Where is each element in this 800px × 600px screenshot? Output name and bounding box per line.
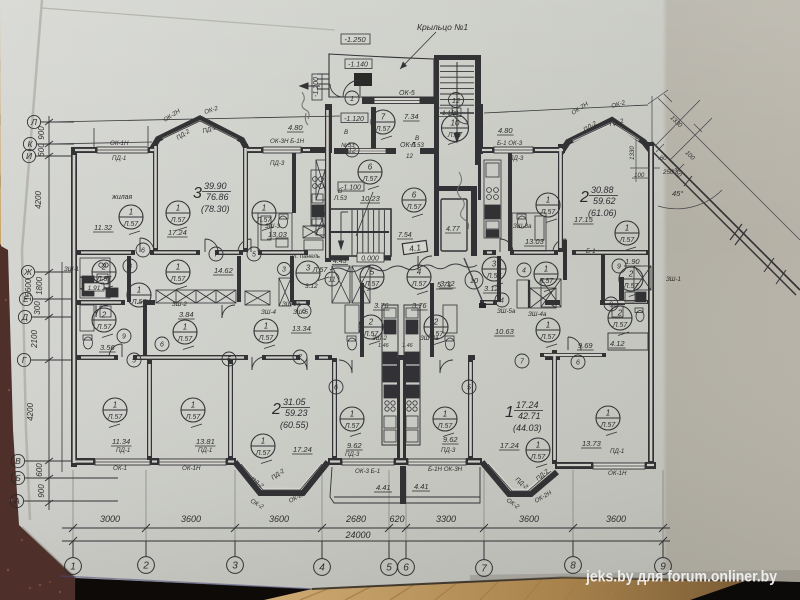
svg-text:5: 5 (252, 252, 256, 259)
svg-text:4.41: 4.41 (376, 483, 391, 492)
svg-text:ПД-1: ПД-1 (116, 447, 130, 454)
svg-text:Л.57: Л.57 (486, 273, 503, 280)
svg-text:12: 12 (452, 96, 461, 105)
svg-text:(60.55): (60.55) (280, 420, 309, 430)
svg-text:Л.57: Л.57 (312, 267, 329, 274)
svg-text:4: 4 (319, 563, 325, 574)
svg-text:600: 600 (35, 463, 44, 477)
svg-text:7: 7 (481, 564, 487, 575)
svg-text:3.76: 3.76 (412, 301, 427, 310)
svg-text:4.1: 4.1 (408, 242, 421, 254)
svg-text:-1.120: -1.120 (344, 116, 364, 123)
svg-text:11.34: 11.34 (112, 437, 130, 446)
svg-text:Л.57: Л.57 (177, 336, 194, 343)
svg-text:4200: 4200 (34, 191, 43, 209)
svg-text:3600: 3600 (181, 514, 201, 524)
svg-text:2: 2 (433, 318, 439, 327)
svg-text:Л.57: Л.57 (623, 283, 640, 290)
svg-text:1: 1 (546, 321, 550, 330)
svg-text:6: 6 (403, 563, 409, 574)
svg-text:6: 6 (412, 191, 417, 200)
svg-text:ПД-1: ПД-1 (198, 447, 212, 454)
svg-text:ЗШ-4: ЗШ-4 (261, 309, 277, 316)
svg-text:Крыльцо №1: Крыльцо №1 (417, 22, 468, 32)
svg-text:ПД-3: ПД-3 (441, 447, 456, 454)
svg-text:Л.57: Л.57 (96, 324, 113, 331)
svg-text:13.81: 13.81 (196, 437, 215, 446)
svg-text:1: 1 (546, 196, 550, 205)
svg-text:8: 8 (570, 561, 576, 572)
svg-text:4: 4 (500, 298, 504, 305)
svg-text:Б-1: Б-1 (586, 248, 596, 255)
svg-text:14.62: 14.62 (214, 266, 234, 275)
svg-text:В: В (338, 188, 342, 195)
svg-text:9.62: 9.62 (443, 435, 458, 444)
svg-text:3.76: 3.76 (374, 301, 389, 310)
svg-text:13.73: 13.73 (582, 439, 602, 448)
svg-text:ПД-3: ПД-3 (345, 451, 360, 458)
svg-text:4.77: 4.77 (446, 226, 461, 233)
svg-text:4.80: 4.80 (498, 126, 513, 135)
svg-text:Л.57: Л.57 (600, 422, 617, 429)
svg-text:9: 9 (122, 334, 126, 341)
svg-text:9: 9 (609, 302, 613, 309)
svg-text:2: 2 (579, 189, 589, 206)
svg-text:5: 5 (386, 563, 392, 574)
svg-text:42.71: 42.71 (518, 411, 541, 421)
svg-text:5: 5 (132, 358, 136, 365)
svg-text:Л.57: Л.57 (406, 204, 423, 211)
svg-text:ЗШ-5: ЗШ-5 (293, 309, 309, 316)
svg-text:.60: .60 (658, 155, 667, 162)
svg-text:9.62: 9.62 (347, 441, 362, 450)
svg-text:Д: Д (21, 312, 28, 322)
svg-text:1: 1 (350, 94, 354, 103)
svg-text:1: 1 (176, 204, 180, 213)
svg-text:Л.57: Л.57 (375, 126, 392, 133)
svg-text:(78.30): (78.30) (201, 204, 230, 214)
svg-text:6: 6 (576, 360, 580, 367)
svg-text:В: В (344, 129, 348, 136)
svg-text:№53: №53 (341, 142, 355, 149)
svg-text:300: 300 (33, 301, 42, 315)
svg-text:(44.03): (44.03) (513, 423, 542, 433)
svg-text:Л.57: Л.57 (107, 414, 124, 421)
svg-text:9: 9 (617, 264, 621, 271)
svg-text:4.12: 4.12 (610, 339, 625, 348)
svg-text:17.24: 17.24 (516, 400, 539, 410)
svg-text:1: 1 (261, 437, 265, 446)
svg-text:3: 3 (232, 561, 238, 572)
svg-text:ЗШ-5а: ЗШ-5а (497, 308, 516, 315)
svg-text:Л.57: Л.57 (258, 335, 275, 342)
svg-text:ПД-3: ПД-3 (509, 155, 524, 162)
svg-text:12: 12 (406, 153, 413, 160)
svg-text:Л.57: Л.57 (447, 132, 464, 139)
svg-text:Л.57: Л.57 (530, 454, 547, 461)
svg-text:3600: 3600 (519, 514, 539, 524)
svg-text:Л.57: Л.57 (437, 423, 454, 430)
svg-text:А: А (13, 496, 20, 506)
svg-text:2: 2 (628, 270, 634, 279)
svg-text:2: 2 (368, 318, 374, 327)
svg-text:Л.57: Л.57 (170, 276, 187, 283)
svg-text:1.91: 1.91 (88, 285, 101, 292)
svg-text:45°: 45° (672, 189, 683, 198)
svg-text:13.03: 13.03 (525, 237, 545, 246)
svg-text:7.54: 7.54 (398, 232, 412, 239)
svg-text:1: 1 (625, 224, 629, 233)
svg-text:6: 6 (368, 163, 373, 172)
svg-text:ОК-1Н: ОК-1Н (182, 465, 201, 472)
svg-text:3.12: 3.12 (440, 279, 455, 288)
svg-text:1: 1 (606, 409, 610, 418)
svg-text:Л.57: Л.57 (344, 423, 361, 430)
svg-text:ОК-5: ОК-5 (399, 90, 415, 97)
svg-text:2100: 2100 (30, 330, 39, 349)
svg-text:Л.57: Л.57 (96, 276, 113, 283)
svg-text:8: 8 (128, 264, 132, 271)
svg-text:39.90: 39.90 (204, 181, 227, 191)
svg-text:ПД-1: ПД-1 (112, 155, 126, 162)
svg-text:ОК-3Н Б-1Н: ОК-3Н Б-1Н (270, 138, 305, 145)
svg-text:100: 100 (634, 172, 645, 179)
svg-text:ПД-1: ПД-1 (610, 448, 624, 455)
svg-text:ЗШ-1: ЗШ-1 (666, 276, 681, 283)
svg-text:1: 1 (70, 562, 76, 573)
svg-text:6: 6 (160, 342, 164, 349)
svg-text:76.86: 76.86 (206, 192, 229, 202)
svg-text:-1.140: -1.140 (348, 62, 368, 69)
svg-text:6: 6 (141, 248, 145, 255)
svg-text:Л: Л (30, 117, 37, 127)
svg-text:В: В (415, 135, 419, 142)
svg-text:jeks.by для forum.onliner.by: jeks.by для forum.onliner.by (585, 569, 777, 586)
svg-text:3300: 3300 (436, 514, 456, 524)
svg-text:ОК-1Н: ОК-1Н (608, 470, 627, 477)
svg-text:Б: Б (15, 473, 21, 483)
svg-text:-1.100: -1.100 (341, 185, 361, 192)
svg-text:Л.57: Л.57 (185, 414, 202, 421)
svg-text:3.12: 3.12 (305, 283, 318, 290)
svg-text:6: 6 (334, 385, 338, 392)
svg-text:9.69: 9.69 (578, 341, 593, 350)
svg-text:Б-1 ОК-3: Б-1 ОК-3 (497, 140, 523, 147)
svg-text:1: 1 (264, 322, 268, 331)
svg-text:24000: 24000 (344, 530, 370, 540)
svg-text:ОК-3 Б-1: ОК-3 Б-1 (355, 468, 380, 475)
svg-text:3000: 3000 (100, 514, 120, 524)
svg-text:17.15: 17.15 (574, 215, 594, 224)
svg-text:13.34: 13.34 (292, 324, 311, 333)
svg-text:11: 11 (328, 277, 335, 284)
svg-text:Л.57: Л.57 (170, 217, 187, 224)
svg-text:3.56: 3.56 (100, 343, 115, 352)
svg-text:Л.53: Л.53 (333, 195, 347, 202)
svg-text:Л.53: Л.53 (410, 142, 424, 149)
svg-text:1: 1 (505, 404, 514, 421)
svg-text:1: 1 (137, 286, 141, 295)
svg-text:ЗШ-2: ЗШ-2 (372, 335, 388, 342)
svg-text:4.43: 4.43 (333, 258, 347, 265)
svg-text:3: 3 (193, 185, 202, 202)
svg-text:3600: 3600 (269, 514, 289, 524)
svg-text:Л.57: Л.57 (411, 281, 428, 288)
svg-text:10.63: 10.63 (495, 327, 515, 336)
svg-text:ЗШ-2: ЗШ-2 (172, 301, 188, 308)
svg-text:ПД-3: ПД-3 (270, 160, 285, 167)
svg-text:0.000: 0.000 (361, 256, 379, 263)
svg-text:10: 10 (451, 119, 460, 128)
svg-text:Л.57: Л.57 (619, 237, 636, 244)
svg-text:ЗШ-4а: ЗШ-4а (528, 311, 547, 318)
svg-text:3.84: 3.84 (179, 310, 194, 319)
svg-text:1800: 1800 (35, 277, 44, 295)
svg-text:1.46: 1.46 (402, 343, 414, 349)
svg-text:1330: 1330 (629, 146, 636, 160)
svg-text:2: 2 (142, 561, 149, 572)
svg-text:5: 5 (227, 357, 231, 364)
svg-text:Л.57: Л.57 (612, 322, 629, 329)
svg-text:1: 1 (176, 263, 180, 272)
svg-text:7.34: 7.34 (404, 112, 419, 121)
svg-text:1: 1 (443, 410, 447, 419)
svg-text:17.24: 17.24 (168, 228, 187, 237)
svg-text:В: В (15, 456, 21, 466)
svg-text:17.24: 17.24 (293, 445, 312, 454)
svg-text:7: 7 (381, 113, 386, 122)
svg-text:эл. панель: эл. панель (290, 253, 320, 260)
svg-text:900: 900 (37, 126, 46, 140)
svg-text:жилая: жилая (111, 194, 133, 201)
svg-text:Л.57: Л.57 (540, 209, 557, 216)
svg-text:4: 4 (522, 268, 526, 275)
svg-text:31.05: 31.05 (283, 397, 307, 407)
svg-text:1: 1 (129, 208, 133, 217)
svg-text:15600: 15600 (24, 278, 33, 301)
svg-text:3: 3 (282, 267, 286, 274)
svg-text:30.88: 30.88 (591, 185, 614, 195)
svg-text:Л.57: Л.57 (362, 176, 379, 183)
svg-text:3600: 3600 (606, 514, 626, 524)
svg-text:4.41: 4.41 (414, 482, 429, 491)
svg-text:Л.57: Л.57 (123, 221, 140, 228)
svg-text:59.23: 59.23 (285, 408, 308, 418)
svg-text:Л.57: Л.57 (538, 278, 555, 285)
svg-text:И: И (26, 151, 33, 161)
svg-text:2: 2 (617, 309, 623, 318)
svg-text:1: 1 (536, 441, 540, 450)
svg-text:11.32: 11.32 (94, 223, 113, 232)
svg-text:1.90: 1.90 (625, 257, 640, 266)
svg-text:ЗШ-3: ЗШ-3 (265, 223, 281, 230)
svg-text:4.80: 4.80 (288, 123, 303, 132)
svg-text:Б-1Н ОК-3Н: Б-1Н ОК-3Н (428, 466, 463, 473)
svg-text:900: 900 (37, 484, 46, 498)
svg-text:13.03: 13.03 (268, 230, 288, 239)
svg-text:1: 1 (350, 410, 354, 419)
svg-text:ОК-1: ОК-1 (113, 465, 127, 472)
svg-text:3.12: 3.12 (484, 284, 499, 293)
svg-text:1: 1 (113, 401, 117, 410)
svg-text:2: 2 (271, 401, 281, 418)
svg-text:1.46: 1.46 (378, 343, 390, 349)
svg-text:ОК-1Н: ОК-1Н (110, 140, 129, 147)
svg-text:10.23: 10.23 (361, 194, 381, 203)
svg-text:2680: 2680 (345, 514, 366, 524)
svg-text:5: 5 (467, 385, 471, 392)
svg-text:1: 1 (544, 265, 548, 274)
svg-text:Ж: Ж (23, 267, 33, 277)
svg-text:-1.200: -1.200 (313, 77, 320, 97)
svg-text:ЗШ-2а: ЗШ-2а (420, 335, 439, 342)
svg-text:ЗШ-3а: ЗШ-3а (513, 223, 532, 230)
svg-text:59.62: 59.62 (593, 196, 616, 206)
svg-text:-1.250: -1.250 (344, 35, 366, 44)
svg-text:620: 620 (389, 514, 404, 524)
svg-text:Л.57: Л.57 (255, 450, 272, 457)
svg-text:3: 3 (492, 260, 497, 269)
svg-text:2: 2 (101, 311, 107, 320)
svg-text:1: 1 (262, 204, 266, 213)
svg-text:1: 1 (191, 401, 195, 410)
svg-text:1: 1 (183, 323, 187, 332)
svg-text:Л.57: Л.57 (540, 334, 557, 341)
svg-text:17.24: 17.24 (500, 441, 519, 450)
svg-text:2: 2 (101, 263, 107, 272)
svg-text:ЗШ-2а: ЗШ-2а (282, 301, 301, 308)
svg-text:600: 600 (37, 143, 46, 157)
svg-text:4200: 4200 (26, 403, 35, 421)
svg-text:3: 3 (306, 264, 311, 273)
svg-text:ЗШ-1: ЗШ-1 (64, 266, 79, 273)
